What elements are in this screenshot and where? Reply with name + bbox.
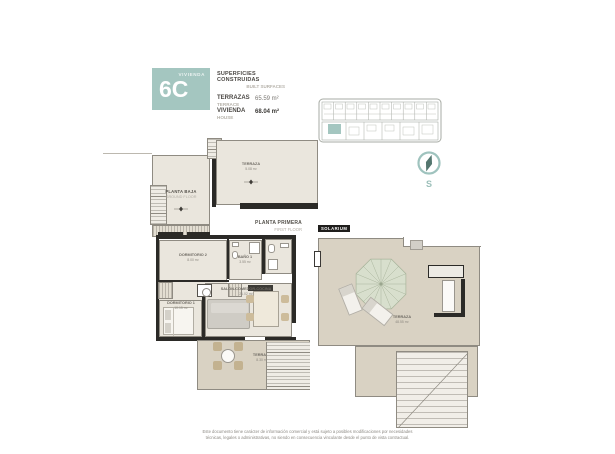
washing-machine [197,284,212,297]
surfaces-table: SUPERFICIES CONSTRUIDAS BUILT SURFACES T… [217,71,297,121]
wall [461,279,465,317]
first-floor-title: PLANTA PRIMERA [245,220,302,226]
skylight [410,240,423,250]
area-row-vivienda: VIVIENDA HOUSE 68.04 m² [217,108,297,121]
solarium-caption: SOLARIUM [318,225,350,232]
compass-icon [415,150,443,177]
room-label: SALÓN-COMEDOR-COCINA 21.02 m² [215,287,277,296]
chair [281,295,289,303]
first-floor-caption: PLANTA PRIMERA FIRST FLOOR [245,220,302,232]
wall [227,239,230,279]
house-label: HOUSE [217,115,297,120]
staircase [396,351,468,428]
level-marker-icon [244,179,258,185]
sink [232,242,239,247]
highlighted-unit [328,124,341,134]
compass: S [415,150,443,189]
outdoor-kitchen [442,280,455,312]
floorplan-sheet: VIVIENDA 6C SUPERFICIES CONSTRUIDAS BUIL… [0,0,615,454]
ground-floor-title: PLANTA BAJA [162,189,200,194]
room-label: DORMITORIO 1 10.15 m² [161,301,201,310]
wall [434,313,465,317]
unit-number: 6C [159,76,188,103]
level-marker-icon [174,206,188,212]
shower [268,259,278,270]
toilet [268,244,275,253]
closet [158,282,173,299]
site-key-plan [316,96,444,151]
chair [246,295,254,303]
service-enclosure [428,265,470,319]
disclaimer-line-2: técnicas, legales o administrativas, no … [0,435,615,441]
chair [281,313,289,321]
exterior-staircase [266,342,310,389]
site-key-plan-drawing [316,96,444,146]
shower [249,242,260,254]
terrazas-value: 65.59 m² [255,96,279,102]
area-row-terrazas: TERRAZAS TERRACE 65.59 m² [217,95,297,108]
unit-badge: VIVIENDA 6C [152,68,210,110]
first-floor-subtitle: FIRST FLOOR [245,227,302,232]
compass-south-label: S [415,179,443,189]
chair [213,342,222,351]
room-label: DORMITORIO 2 8.00 m² [171,253,215,262]
wall [262,236,265,274]
vivienda-value: 68.04 m² [255,109,279,115]
bench [428,265,464,278]
round-table [221,349,235,363]
room-label: BAÑO 1 3.55 m² [231,255,259,264]
wall [240,203,318,209]
chair [246,313,254,321]
sink [280,243,289,248]
planter [314,251,321,267]
solarium-plan: SOLARIUM TERRAZA 48 [308,222,493,434]
wall [292,235,296,323]
boundary-line [103,153,152,154]
room-label: TERRAZA 48.55 m² [390,315,414,324]
chair [234,342,243,351]
sofa [207,299,250,329]
stair-direction-line [397,352,469,429]
chair [234,361,243,370]
surfaces-title-es: SUPERFICIES CONSTRUIDAS [217,71,297,83]
ground-floor-caption: PLANTA BAJA GROUND FLOOR [162,189,200,217]
terrace: TERRAZA 8.30 m² [197,340,310,390]
first-floor-plan: TERRAZA 8.30 m² DORMITORIO 2 8.00 m² BAÑ… [153,233,315,395]
footer-disclaimer: Este documento tiene carácter de informa… [0,429,615,441]
wall [202,297,205,340]
room-label: TERRAZA 5.08 m² [231,162,271,191]
ground-floor-subtitle: GROUND FLOOR [162,195,200,199]
bed [163,307,194,335]
dining-table [253,291,279,327]
terrace-label: TERRACE [217,102,297,107]
chair [213,361,222,370]
